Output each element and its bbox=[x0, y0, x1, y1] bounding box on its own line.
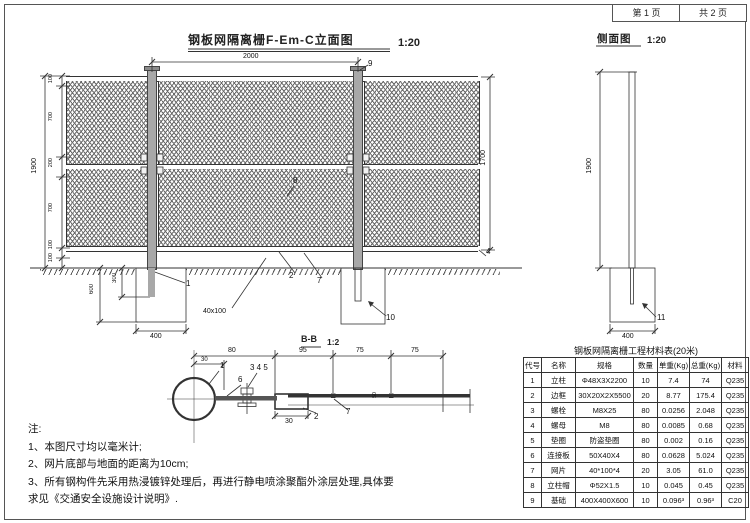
table-cell: 80 bbox=[634, 418, 658, 433]
dim-left-chain: 700 bbox=[48, 203, 54, 212]
table-cell: 0.45 bbox=[690, 478, 722, 493]
table-cell: 400X400X600 bbox=[576, 493, 634, 508]
table-cell: 1 bbox=[524, 373, 542, 388]
part-label-bb-bolts: 3 4 5 bbox=[250, 363, 268, 372]
table-cell: 10 bbox=[634, 373, 658, 388]
table-cell: 0.68 bbox=[690, 418, 722, 433]
table-cell: M8X25 bbox=[576, 403, 634, 418]
table-cell: 0.0085 bbox=[658, 418, 690, 433]
table-cell: 7 bbox=[524, 463, 542, 478]
table-row: 3螺栓M8X25800.02562.048Q235 bbox=[524, 403, 749, 418]
notes-line: 2、网片底部与地面的距离为10cm; bbox=[28, 456, 516, 474]
table-cell: 61.0 bbox=[690, 463, 722, 478]
table-cell: 0.16 bbox=[690, 433, 722, 448]
table-row: 6连接板50X40X4800.06285.024Q235 bbox=[524, 448, 749, 463]
table-cell: Q235 bbox=[722, 448, 749, 463]
table-header-row: 代号名称规格数量单重(Kg)总重(Kg)材料 bbox=[524, 358, 749, 373]
table-cell: Q235 bbox=[722, 373, 749, 388]
dim-span: 2000 bbox=[243, 53, 259, 60]
dim-bb-30: 30 bbox=[201, 357, 208, 363]
table-header-cell: 总重(Kg) bbox=[690, 358, 722, 373]
notes-line: 3、所有钢构件先采用热浸镀锌处理后，再进行静电喷涂聚酯外涂层处理,具体要 bbox=[28, 474, 516, 492]
table-cell: 0.096³ bbox=[658, 493, 690, 508]
dim-total-height: 1900 bbox=[31, 158, 38, 174]
table-row: 9基础400X400X600100.096³0.96³C20 bbox=[524, 493, 749, 508]
table-cell: 50X40X4 bbox=[576, 448, 634, 463]
table-cell: 基础 bbox=[542, 493, 576, 508]
table-row: 2边框30X20X2X5500208.77175.4Q235 bbox=[524, 388, 749, 403]
dim-side-height: 1900 bbox=[586, 158, 593, 174]
table-header-cell: 名称 bbox=[542, 358, 576, 373]
table-cell: 7.4 bbox=[658, 373, 690, 388]
table-cell: 0.0256 bbox=[658, 403, 690, 418]
dim-panel-height: 1700 bbox=[480, 150, 487, 166]
part-label-mid: 8 bbox=[293, 176, 297, 185]
table-cell: Q235 bbox=[722, 463, 749, 478]
table-cell: 3.05 bbox=[658, 463, 690, 478]
table-cell: 40*100*4 bbox=[576, 463, 634, 478]
table-cell: 连接板 bbox=[542, 448, 576, 463]
dim-left-chain: 700 bbox=[48, 112, 54, 121]
table-cell: 80 bbox=[634, 403, 658, 418]
table-row: 8立柱帽Φ52X1.5100.0450.45Q235 bbox=[524, 478, 749, 493]
table-cell: Q235 bbox=[722, 388, 749, 403]
part-label-bb-post: 1 bbox=[220, 361, 224, 370]
dim-foundation-depth: 600 bbox=[89, 284, 95, 294]
dim-bb-80: 80 bbox=[228, 347, 236, 354]
table-cell: 5.024 bbox=[690, 448, 722, 463]
table-cell: 5 bbox=[524, 433, 542, 448]
table-cell: 80 bbox=[634, 433, 658, 448]
part-label-bb-plate: 6 bbox=[238, 375, 242, 384]
part-label-post: 1 bbox=[186, 279, 190, 288]
table-header-cell: 单重(Kg) bbox=[658, 358, 690, 373]
table-row: 1立柱Φ48X3X2200107.474Q235 bbox=[524, 373, 749, 388]
table-cell: 10 bbox=[634, 493, 658, 508]
part-label-side-foundation: 11 bbox=[657, 313, 665, 322]
table-cell: Q235 bbox=[722, 478, 749, 493]
table-cell: 0.0628 bbox=[658, 448, 690, 463]
table-cell: Q235 bbox=[722, 433, 749, 448]
table-cell: 网片 bbox=[542, 463, 576, 478]
table-cell: 2 bbox=[524, 388, 542, 403]
table-cell: 0.045 bbox=[658, 478, 690, 493]
notes-line: 1、本图尺寸均以毫米计; bbox=[28, 439, 516, 457]
notes-block: 注: 1、本图尺寸均以毫米计; 2、网片底部与地面的距离为10cm; 3、所有钢… bbox=[28, 421, 516, 509]
table-cell: 2.048 bbox=[690, 403, 722, 418]
part-label-rail: 4 bbox=[486, 247, 490, 256]
table-header-cell: 代号 bbox=[524, 358, 542, 373]
table-header-cell: 规格 bbox=[576, 358, 634, 373]
table-cell: 74 bbox=[690, 373, 722, 388]
table-cell: 螺栓 bbox=[542, 403, 576, 418]
dim-side-foundation-width: 400 bbox=[622, 333, 634, 340]
dim-post-embed: 300 bbox=[112, 273, 118, 283]
dim-bb-75a: 75 bbox=[356, 347, 364, 354]
table-cell: 8 bbox=[524, 478, 542, 493]
part-label-frame: 2 bbox=[289, 271, 293, 280]
table-cell: 0.002 bbox=[658, 433, 690, 448]
drawing-sheet: 第 1 页 共 2 页 钢板网隔离栅F-Em-C立面图 1:20 侧面图 1:2… bbox=[0, 0, 750, 523]
materials-table-body: 1立柱Φ48X3X2200107.474Q2352边框30X20X2X55002… bbox=[524, 373, 749, 508]
table-cell: 8.77 bbox=[658, 388, 690, 403]
dim-bb-95: 95 bbox=[299, 347, 307, 354]
table-row: 5垫圈防盗垫圈800.0020.16Q235 bbox=[524, 433, 749, 448]
table-cell: 立柱 bbox=[542, 373, 576, 388]
table-row: 4螺母M8800.00850.68Q235 bbox=[524, 418, 749, 433]
notes-heading: 注: bbox=[28, 421, 516, 439]
table-cell: 30X20X2X5500 bbox=[576, 388, 634, 403]
table-cell: 9 bbox=[524, 493, 542, 508]
dim-left-chain: 100 bbox=[48, 74, 54, 83]
part-label-foundation: 10 bbox=[386, 313, 395, 322]
dim-left-chain: 100 bbox=[48, 253, 54, 262]
part-label-post-cap: 9 bbox=[368, 59, 372, 68]
notes-line: 求见《交通安全设施设计说明》. bbox=[28, 491, 516, 509]
table-cell: 防盗垫圈 bbox=[576, 433, 634, 448]
part-label-bb-frame: 2 bbox=[314, 412, 318, 421]
table-cell: 6 bbox=[524, 448, 542, 463]
table-cell: M8 bbox=[576, 418, 634, 433]
table-header-cell: 数量 bbox=[634, 358, 658, 373]
table-cell: 边框 bbox=[542, 388, 576, 403]
table-cell: 螺母 bbox=[542, 418, 576, 433]
table-cell: Φ48X3X2200 bbox=[576, 373, 634, 388]
table-cell: 垫圈 bbox=[542, 433, 576, 448]
table-cell: 0.96³ bbox=[690, 493, 722, 508]
table-cell: 20 bbox=[634, 388, 658, 403]
table-row: 7网片40*100*4203.0561.0Q235 bbox=[524, 463, 749, 478]
table-cell: 4 bbox=[524, 418, 542, 433]
table-cell: Q235 bbox=[722, 403, 749, 418]
part-label-mesh: 7 bbox=[317, 276, 321, 285]
table-cell: C20 bbox=[722, 493, 749, 508]
dim-bb-75b: 75 bbox=[411, 347, 419, 354]
materials-table: 代号名称规格数量单重(Kg)总重(Kg)材料 1立柱Φ48X3X2200107.… bbox=[523, 357, 749, 508]
dim-foundation-width: 400 bbox=[150, 333, 162, 340]
table-cell: 80 bbox=[634, 448, 658, 463]
dim-left-chain: 100 bbox=[48, 240, 54, 249]
dim-mesh-size: 40x100 bbox=[203, 308, 226, 315]
dim-bb-mesh-offset: 50 bbox=[372, 392, 378, 398]
materials-table-title: 钢板网隔离栅工程材料表(20米) bbox=[523, 344, 749, 357]
table-header-cell: 材料 bbox=[722, 358, 749, 373]
part-label-bb-mesh: 7 bbox=[346, 407, 350, 416]
table-cell: Q235 bbox=[722, 418, 749, 433]
table-cell: 10 bbox=[634, 478, 658, 493]
table-cell: 175.4 bbox=[690, 388, 722, 403]
table-cell: Φ52X1.5 bbox=[576, 478, 634, 493]
table-cell: 3 bbox=[524, 403, 542, 418]
table-cell: 立柱帽 bbox=[542, 478, 576, 493]
table-cell: 20 bbox=[634, 463, 658, 478]
dim-left-chain: 200 bbox=[48, 158, 54, 167]
